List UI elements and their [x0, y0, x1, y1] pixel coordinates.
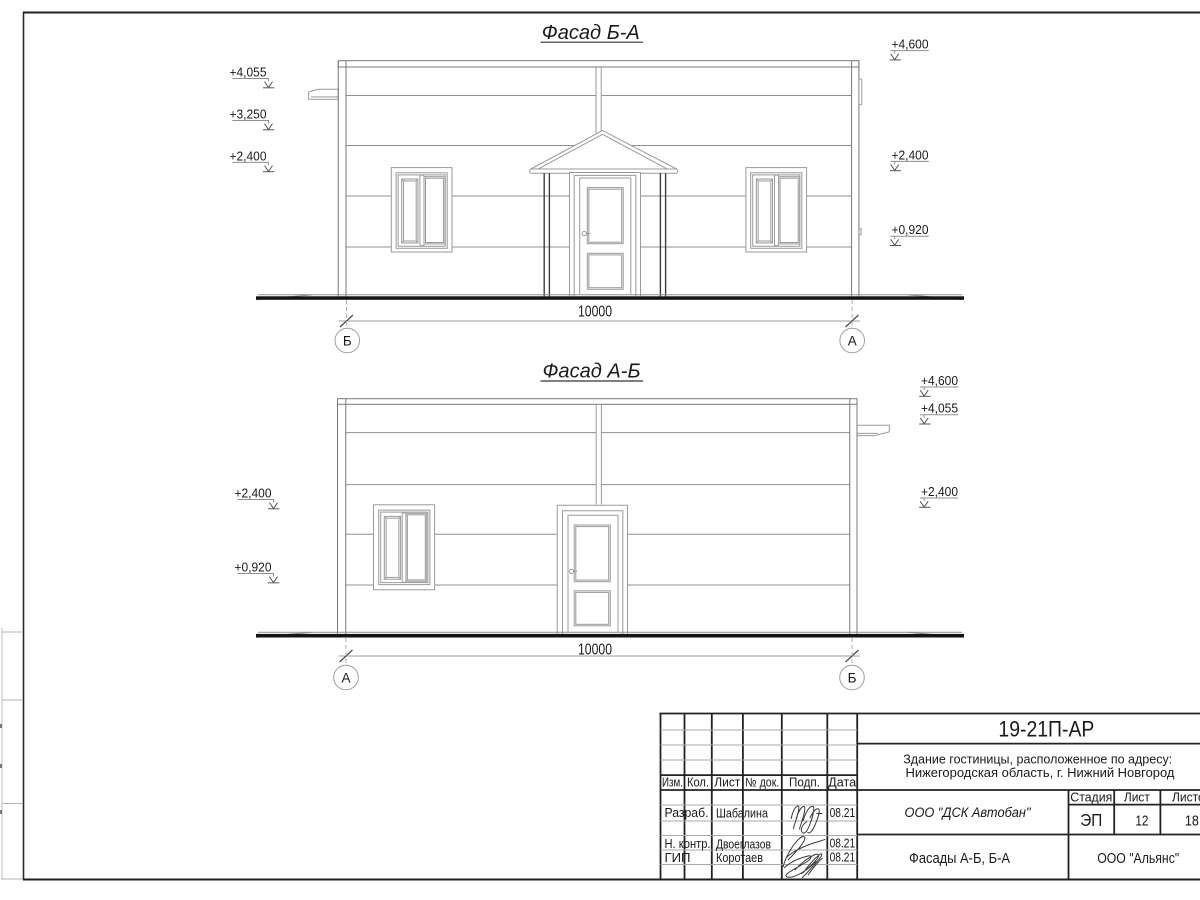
svg-text:№ док.: № док. — [745, 775, 779, 789]
svg-text:Подп.: Подп. — [789, 775, 820, 789]
svg-text:Нижегородская область, г. Нижн: Нижегородская область, г. Нижний Новгоро… — [906, 766, 1176, 780]
svg-text:+4,055: +4,055 — [921, 402, 958, 416]
svg-text:+2,400: +2,400 — [892, 148, 929, 162]
svg-text:Стадия: Стадия — [1070, 790, 1112, 804]
svg-text:+2,400: +2,400 — [921, 485, 958, 499]
svg-text:Кол.: Кол. — [687, 775, 709, 789]
svg-text:Шабалина: Шабалина — [716, 807, 768, 821]
svg-text:+4,600: +4,600 — [892, 38, 929, 52]
svg-text:10000: 10000 — [578, 641, 612, 658]
svg-text:Двоеглазов: Двоеглазов — [716, 837, 771, 851]
svg-text:+2,400: +2,400 — [230, 149, 267, 163]
svg-text:ООО "Альянс": ООО "Альянс" — [1097, 851, 1179, 867]
svg-text:12: 12 — [1135, 812, 1148, 829]
svg-text:Фасад Б-А: Фасад Б-А — [542, 22, 640, 44]
svg-text:А: А — [848, 333, 857, 348]
svg-text:+4,055: +4,055 — [230, 66, 267, 80]
svg-text:08.21: 08.21 — [830, 806, 856, 820]
svg-text:+0,920: +0,920 — [235, 561, 272, 575]
svg-text:+4,600: +4,600 — [921, 374, 958, 388]
svg-text:Б: Б — [848, 670, 857, 685]
svg-text:Листов: Листов — [1172, 790, 1200, 804]
svg-text:Б: Б — [343, 333, 352, 348]
svg-text:Коротаев: Коротаев — [716, 851, 763, 865]
svg-text:18: 18 — [1185, 812, 1199, 829]
svg-text:+3,250: +3,250 — [230, 108, 267, 122]
svg-text:Лист: Лист — [1124, 790, 1150, 804]
svg-text:08.21: 08.21 — [830, 850, 856, 864]
svg-text:Фасад А-Б: Фасад А-Б — [543, 360, 641, 382]
svg-text:ЭП: ЭП — [1080, 810, 1102, 830]
svg-text:08.21: 08.21 — [830, 837, 856, 851]
svg-text:Н. контр.: Н. контр. — [665, 837, 711, 851]
svg-text:Изм.: Изм. — [662, 775, 683, 789]
svg-text:Лист: Лист — [714, 775, 740, 789]
svg-text:Фасады А-Б, Б-А: Фасады А-Б, Б-А — [909, 851, 1010, 867]
svg-text:ГИП: ГИП — [665, 851, 691, 865]
svg-text:А: А — [341, 670, 350, 685]
svg-text:10000: 10000 — [578, 303, 612, 320]
svg-text:Дата: Дата — [828, 775, 856, 789]
svg-text:ООО "ДСК Автобан": ООО "ДСК Автобан" — [905, 805, 1032, 820]
svg-text:Здание гостиницы, расположенно: Здание гостиницы, расположенное по адрес… — [903, 752, 1172, 766]
svg-text:+0,920: +0,920 — [892, 223, 929, 237]
svg-text:Разраб.: Разраб. — [665, 806, 709, 820]
svg-text:+2,400: +2,400 — [235, 487, 272, 501]
svg-text:19-21П-АР: 19-21П-АР — [998, 717, 1094, 742]
